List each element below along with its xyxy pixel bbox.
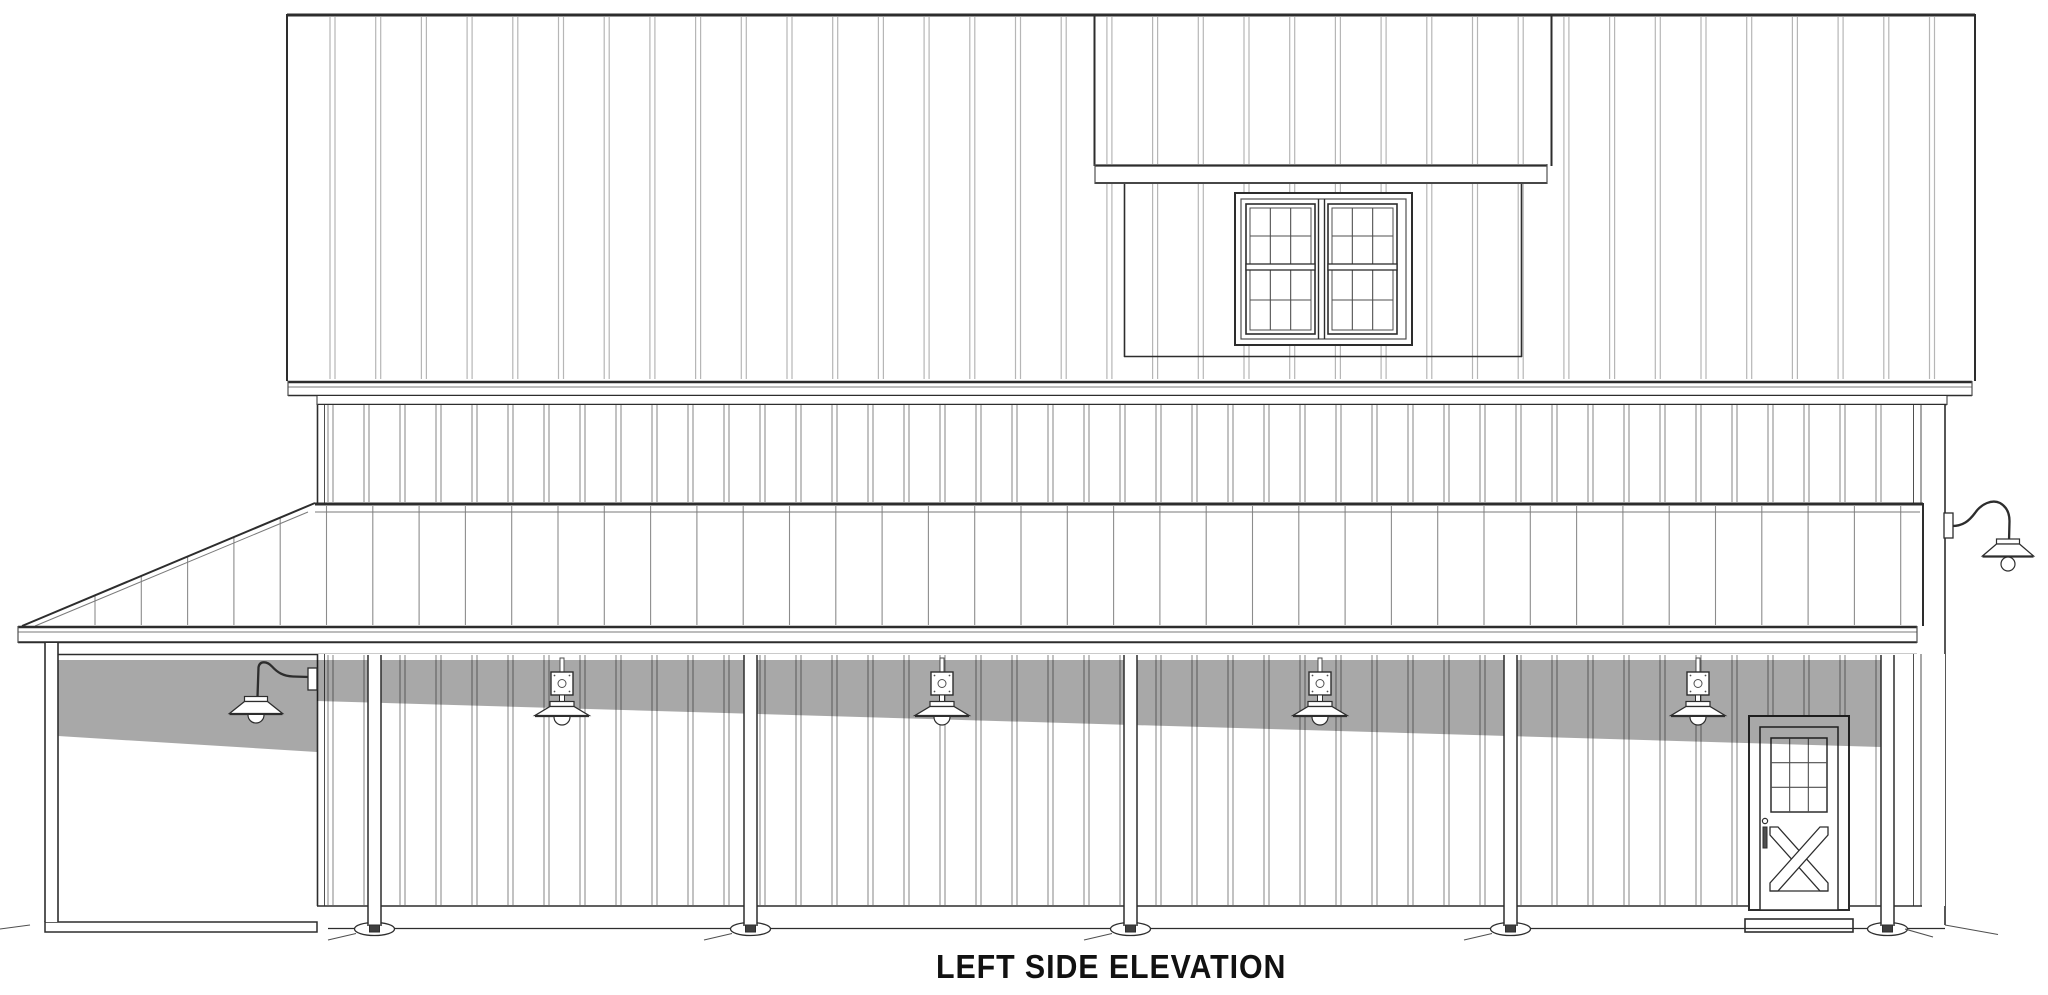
- entry-door: [1745, 716, 1853, 932]
- drawing-title: LEFT SIDE ELEVATION: [936, 948, 1286, 986]
- elevation-drawing: [0, 0, 2048, 995]
- elevation-sheet: LEFT SIDE ELEVATION: [0, 0, 2048, 995]
- second-floor-wall: [287, 14, 1975, 381]
- porch-corner-post: [45, 643, 58, 922]
- porch-roof: [18, 503, 1923, 643]
- floor-trim-band: [288, 381, 1972, 405]
- dormer-window: [1235, 193, 1412, 345]
- porch-slab: [45, 922, 317, 932]
